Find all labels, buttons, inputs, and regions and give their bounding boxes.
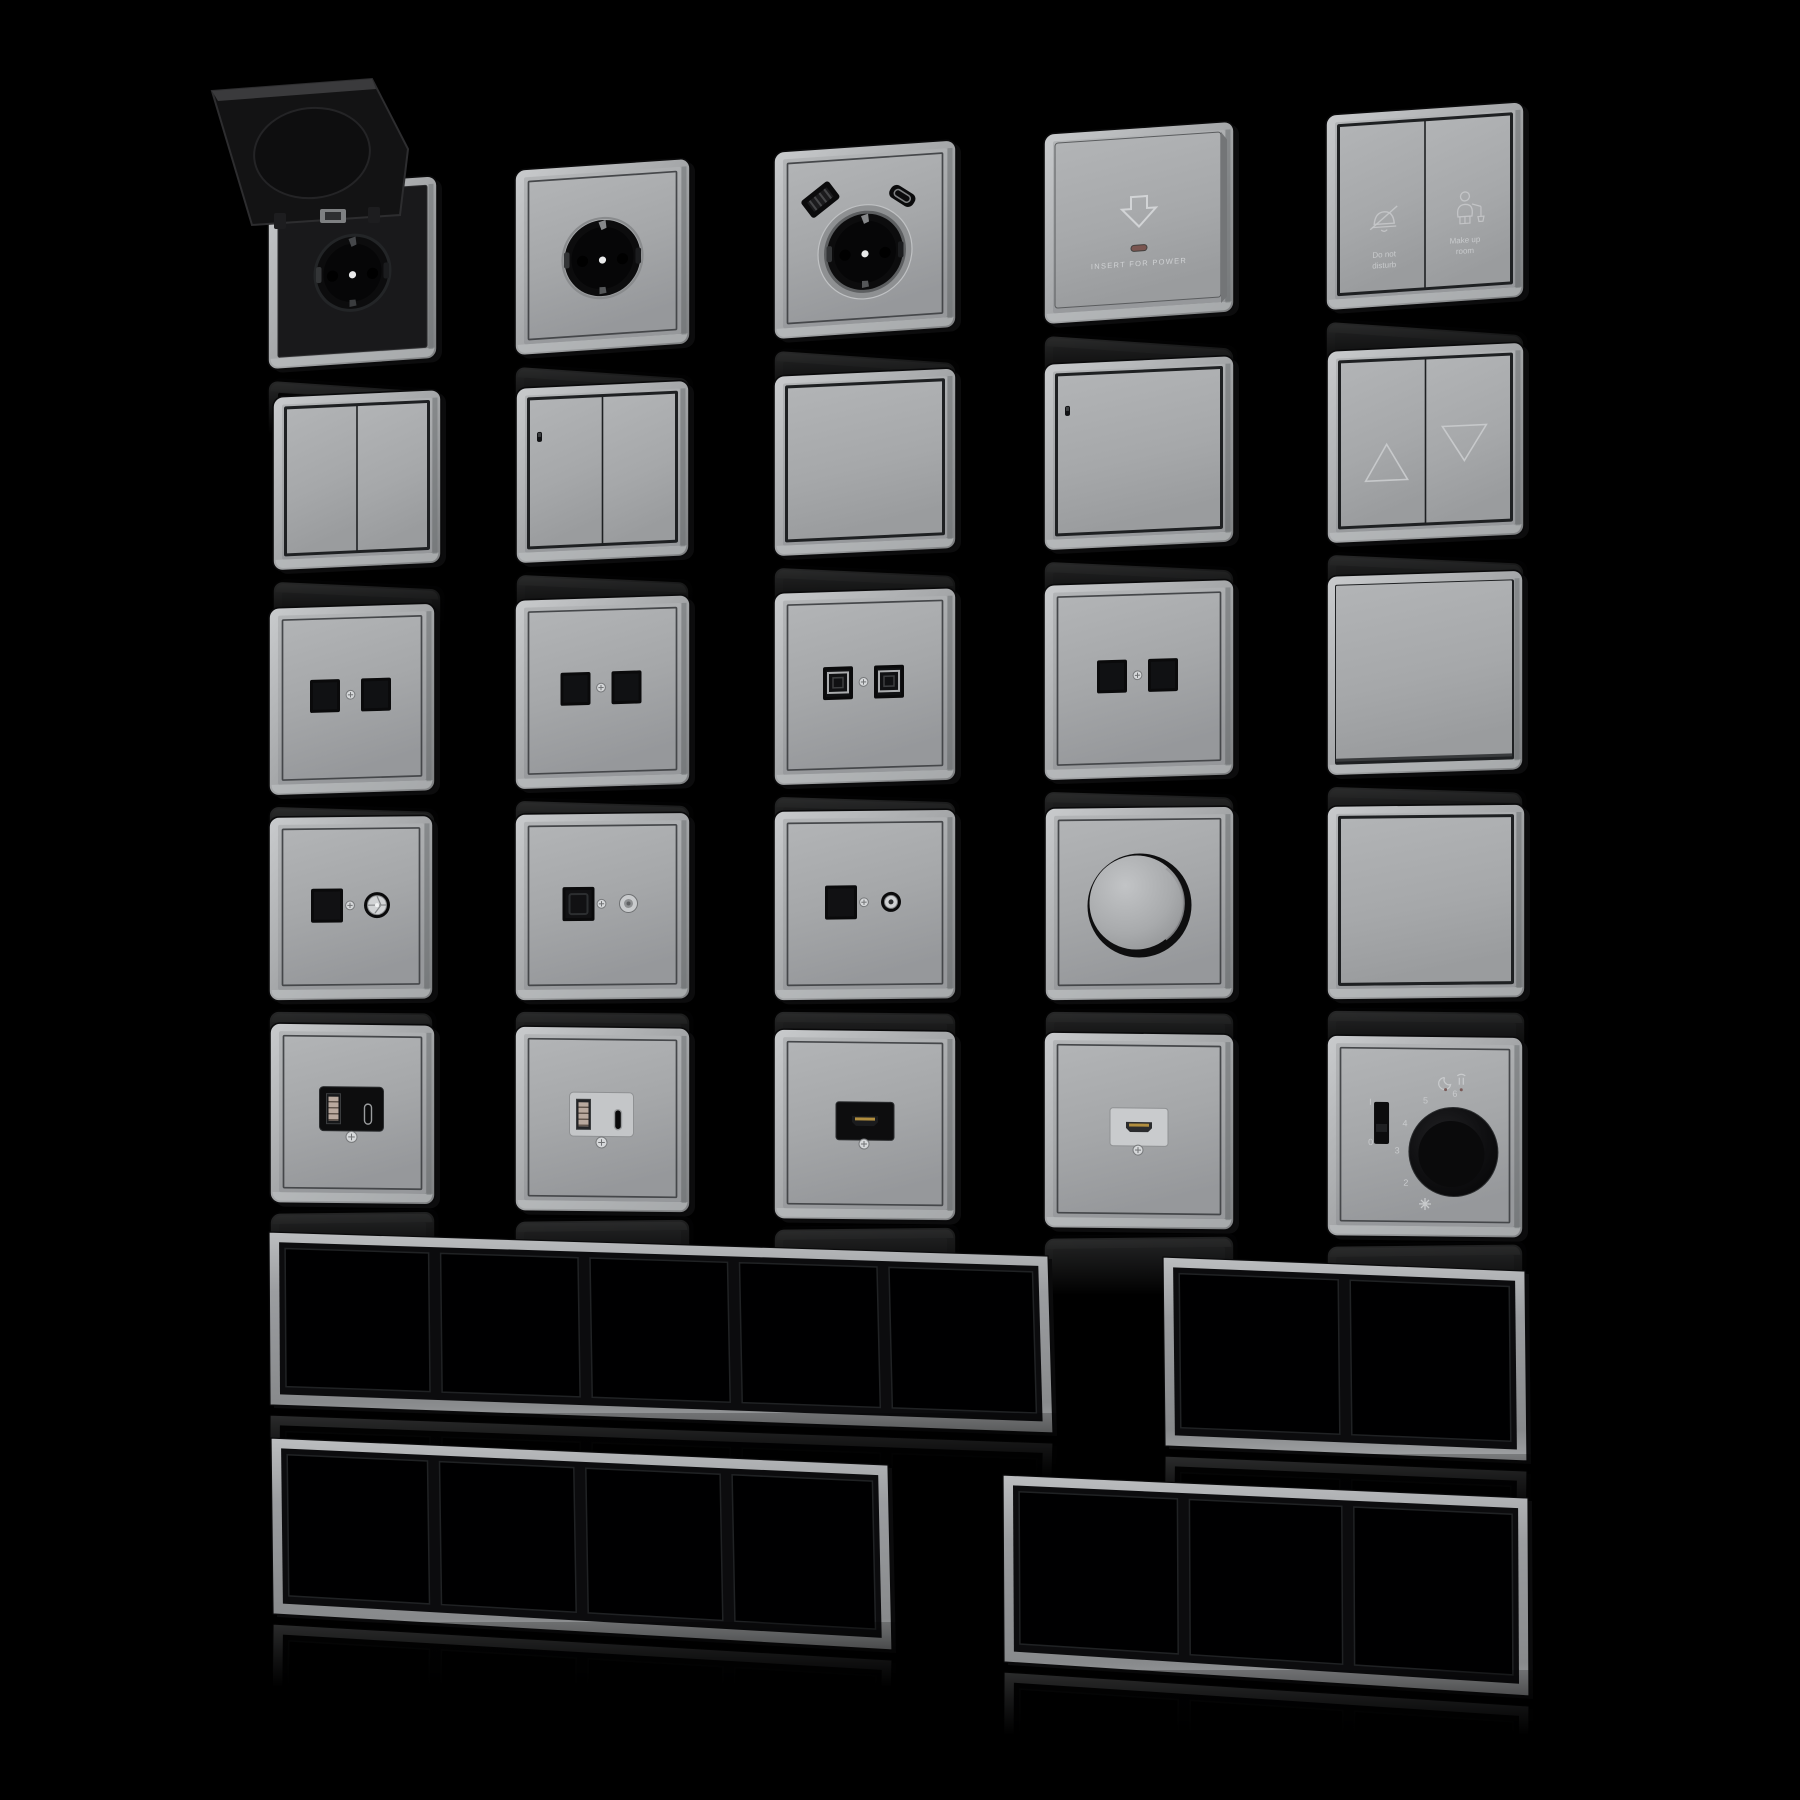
svg-text:Do not: Do not (1372, 249, 1396, 260)
svg-text:disturb: disturb (1372, 260, 1397, 271)
svg-text:room: room (1456, 246, 1475, 256)
svg-text:3: 3 (1395, 1145, 1400, 1155)
svg-text:5: 5 (1423, 1095, 1428, 1105)
svg-text:6: 6 (1452, 1089, 1457, 1099)
svg-text:2: 2 (1403, 1178, 1408, 1188)
svg-text:0: 0 (1368, 1137, 1373, 1147)
svg-text:4: 4 (1402, 1118, 1407, 1128)
svg-text:I: I (1369, 1097, 1372, 1107)
